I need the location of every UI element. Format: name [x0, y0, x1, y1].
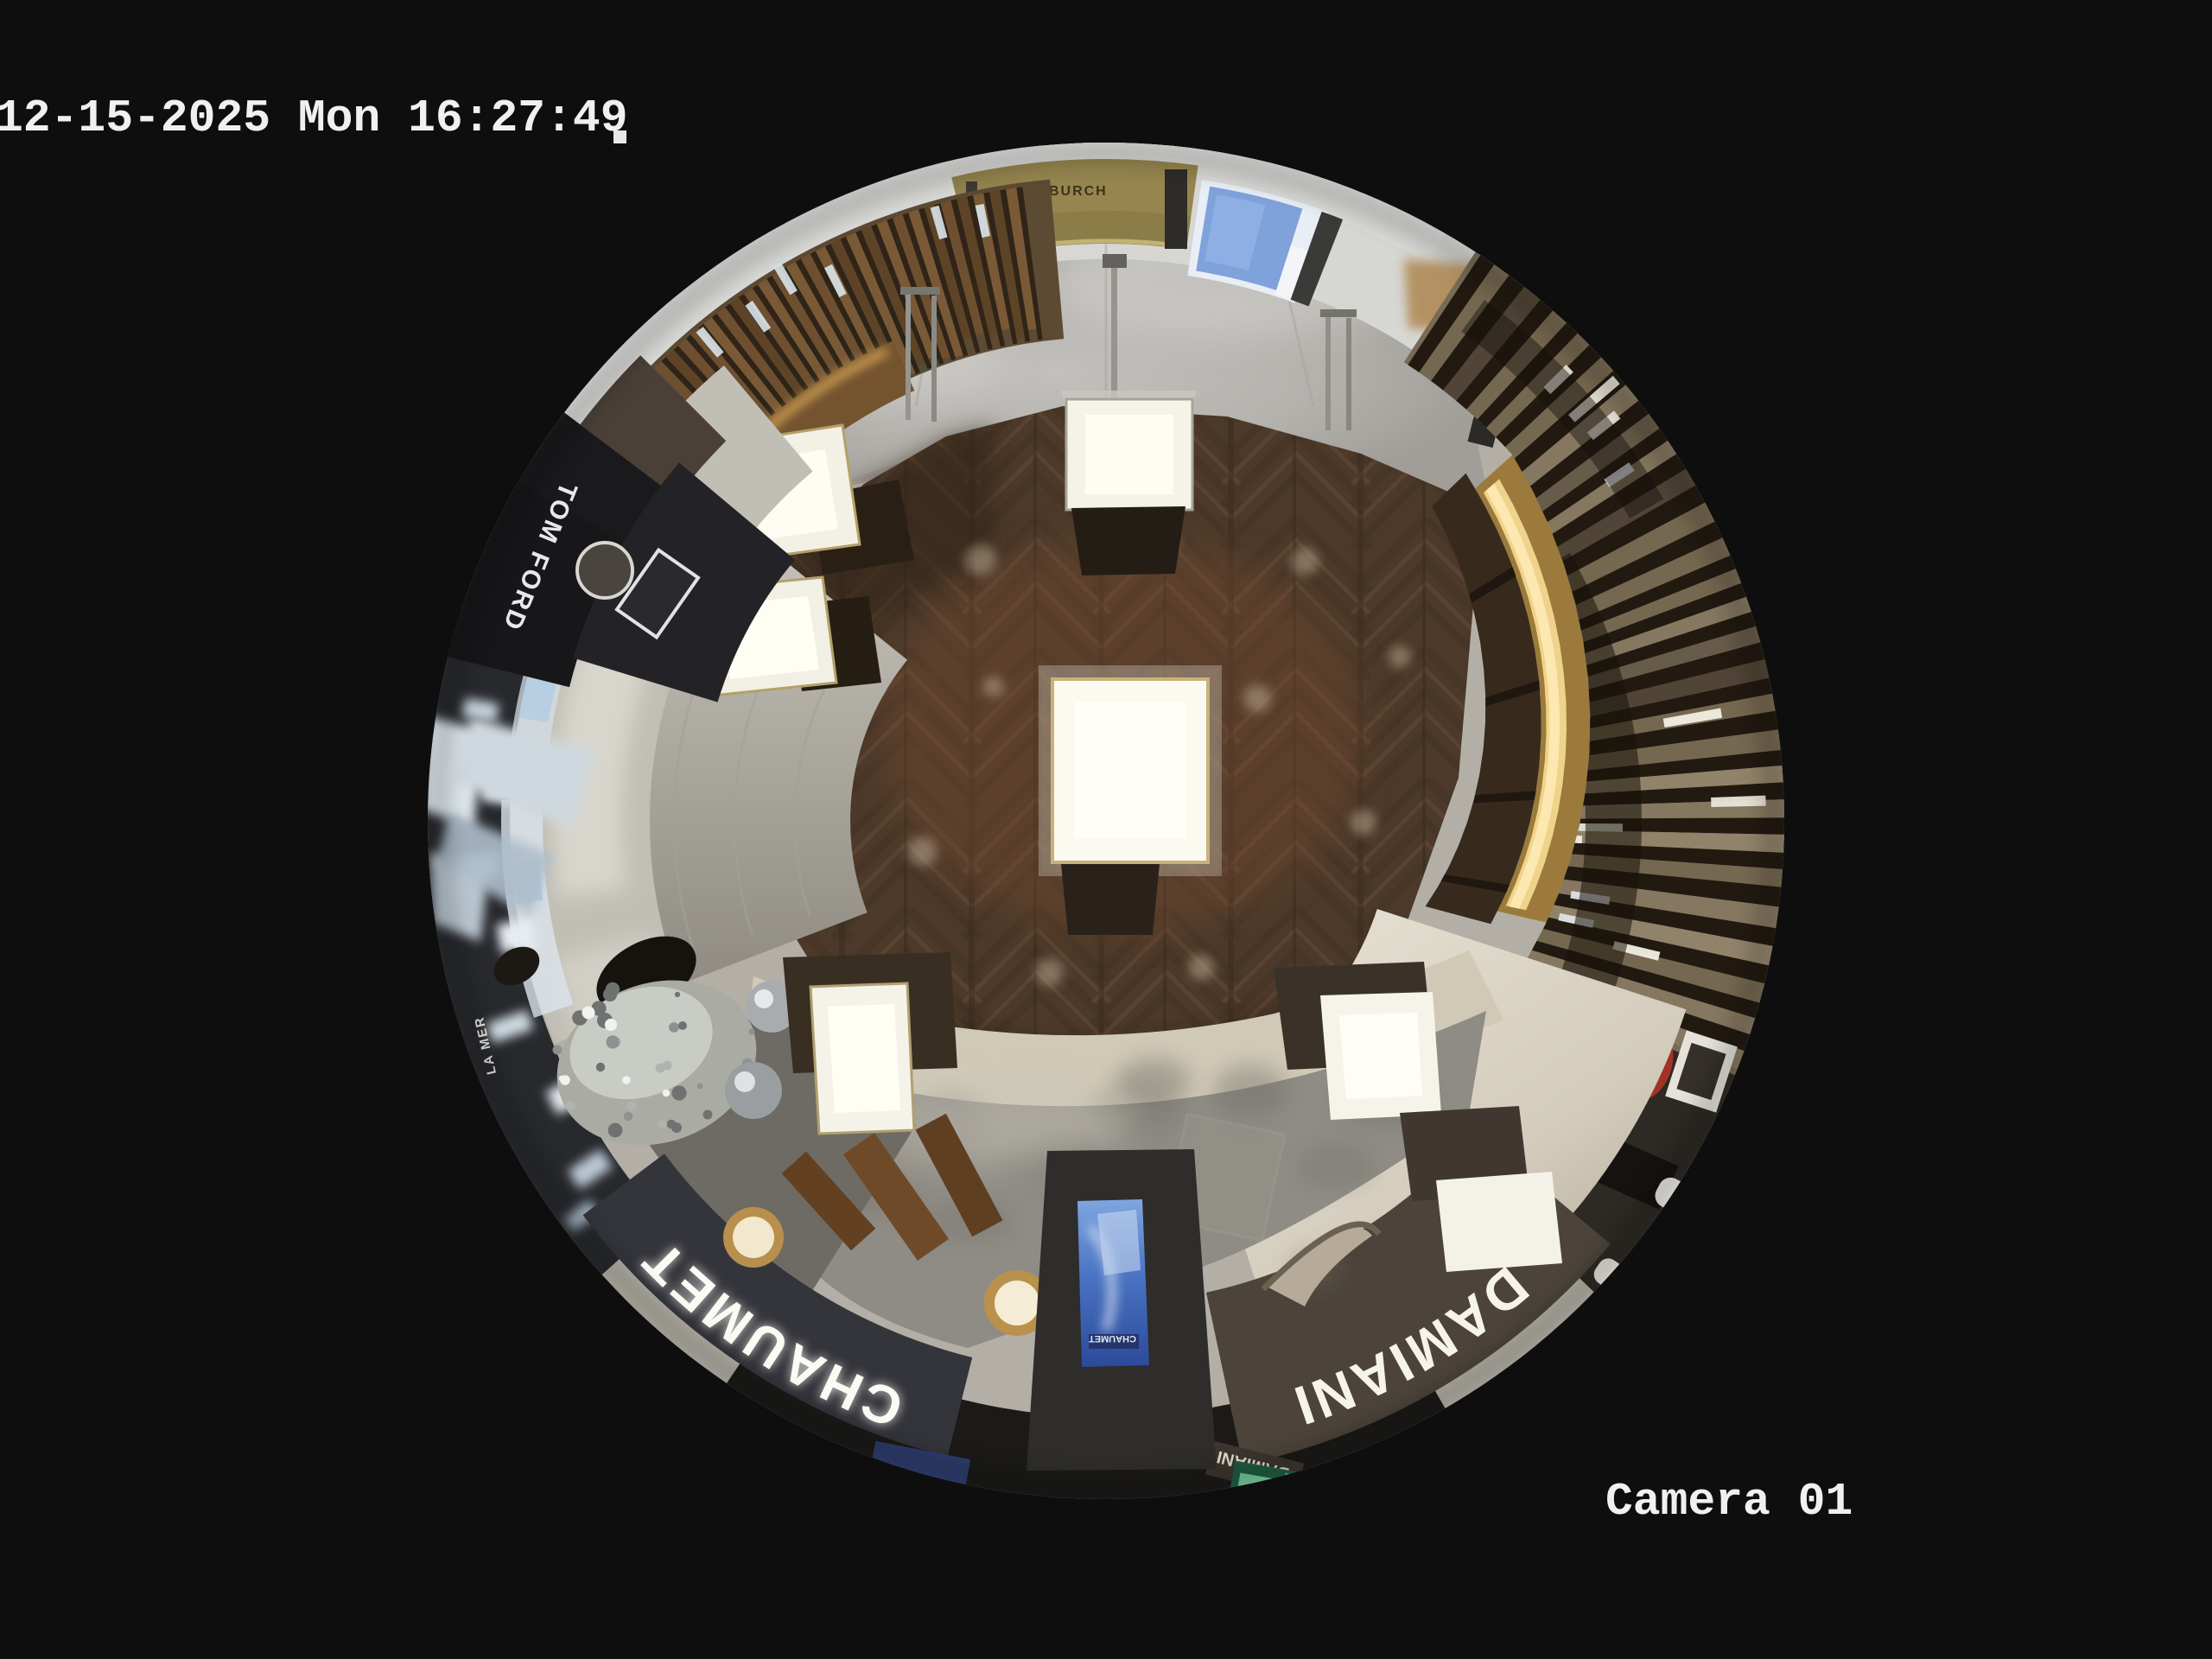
- svg-text:12-15-2025 Mon 16:27:49: 12-15-2025 Mon 16:27:49: [0, 92, 628, 144]
- svg-text:Camera 01: Camera 01: [1605, 1476, 1853, 1528]
- svg-text:CHAUMET: CHAUMET: [1089, 1333, 1136, 1344]
